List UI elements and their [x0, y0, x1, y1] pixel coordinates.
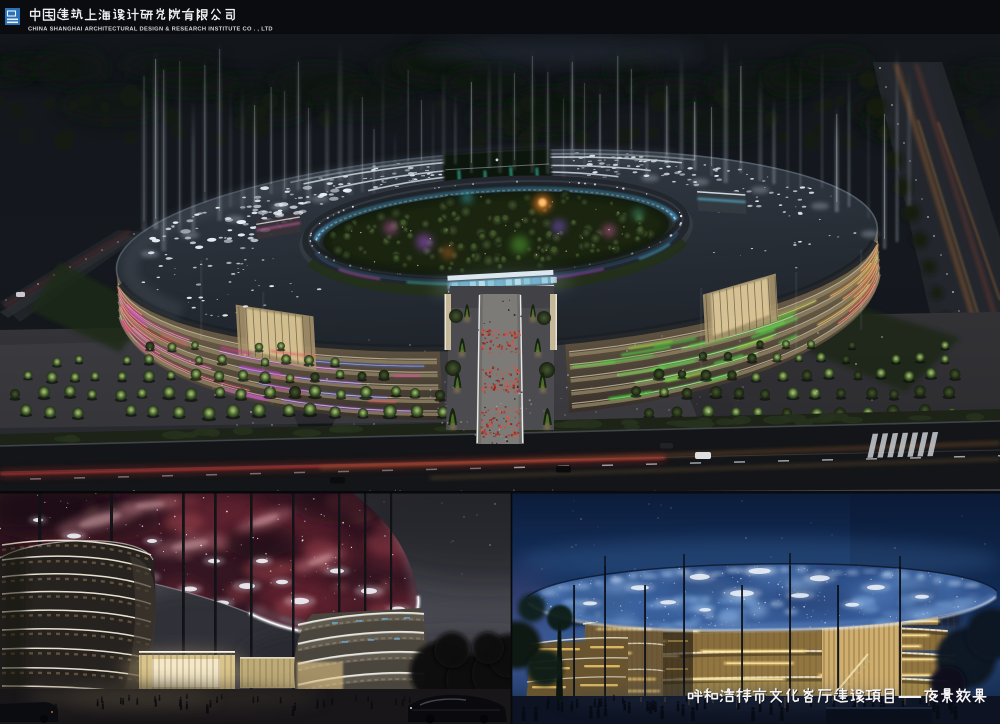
svg-text:CHINA SHANGHAI ARCHITECTURAL D: CHINA SHANGHAI ARCHITECTURAL DESIGN & RE…	[28, 27, 273, 33]
